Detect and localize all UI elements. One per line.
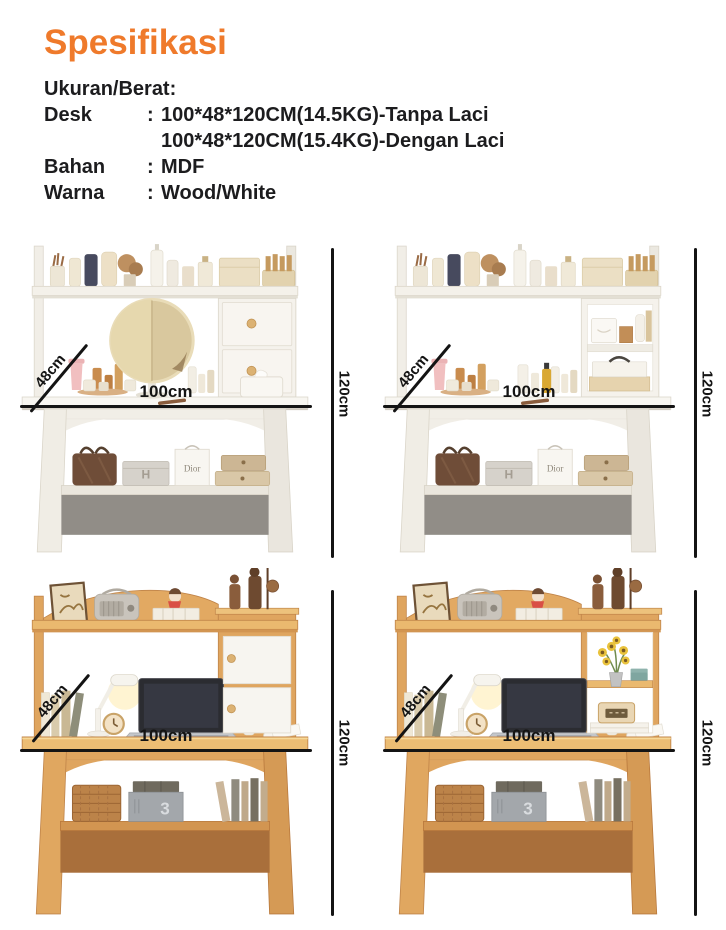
dimension-width-line (20, 749, 312, 752)
product-photo-wood-open-shelves: 3 48cm 100cm 120cm (363, 564, 726, 930)
bag-brand-label: Dior (184, 463, 201, 473)
spec-value: MDF (161, 154, 704, 180)
product-photo-white-open-shelves: H Dior 48cm 100cm 120cm (363, 216, 726, 564)
spec-colon: : (147, 102, 161, 128)
dimension-height: 120cm (694, 590, 716, 916)
box-number-label: 3 (160, 799, 170, 818)
spec-colon: : (147, 180, 161, 206)
box-letter-label: H (142, 467, 151, 481)
spec-row-bahan: Bahan : MDF (44, 154, 704, 180)
dimension-height-line (694, 248, 697, 558)
spec-value: 100*48*120CM(14.5KG)-Tanpa Laci (161, 102, 704, 128)
dimension-height: 120cm (694, 248, 716, 558)
spec-value: Wood/White (161, 180, 704, 206)
product-photo-white-vanity-drawers: H Dior 48cm 100cm 120cm (0, 216, 363, 564)
spec-row-desk: Desk : 100*48*120CM(14.5KG)-Tanpa Laci (44, 102, 704, 128)
spec-row-warna: Warna : Wood/White (44, 180, 704, 206)
dimension-height-line (331, 248, 334, 558)
box-letter-label: H (505, 467, 514, 481)
spec-label: Bahan (44, 154, 147, 180)
dimension-height-line (331, 590, 334, 916)
dimension-height: 120cm (331, 248, 353, 558)
spec-row-desk-2: 100*48*120CM(15.4KG)-Dengan Laci (44, 128, 704, 154)
dimension-width: 100cm (20, 726, 312, 752)
dimension-width-line (383, 749, 675, 752)
open-shelf-unit (587, 304, 652, 391)
spec-colon: : (147, 154, 161, 180)
spec-value: 100*48*120CM(15.4KG)-Dengan Laci (161, 128, 704, 154)
spec-colon (147, 128, 161, 154)
dimension-width: 100cm (20, 382, 312, 408)
dimension-width-line (383, 405, 675, 408)
bag-brand-label: Dior (547, 463, 564, 473)
dimension-height-line (694, 590, 697, 916)
open-shelf-unit (587, 632, 652, 733)
product-gallery: H Dior 48cm 100cm 120cm (0, 216, 726, 930)
dimension-width: 100cm (383, 726, 675, 752)
spec-label: Warna (44, 180, 147, 206)
dimension-width: 100cm (383, 382, 675, 408)
spec-label: Desk (44, 102, 147, 128)
spec-sheet: Spesifikasi Ukuran/Berat: Desk : 100*48*… (0, 0, 726, 930)
dimension-width-line (20, 405, 312, 408)
spec-label (44, 128, 147, 154)
spec-header: Spesifikasi Ukuran/Berat: Desk : 100*48*… (44, 24, 704, 206)
spec-section-label: Ukuran/Berat: (44, 76, 704, 102)
page-title: Spesifikasi (44, 24, 704, 63)
dimension-height: 120cm (331, 590, 353, 916)
product-photo-wood-cabinet-doors: 3 48cm 100cm 120cm (0, 564, 363, 930)
spec-table: Desk : 100*48*120CM(14.5KG)-Tanpa Laci 1… (44, 102, 704, 206)
box-number-label: 3 (523, 799, 533, 818)
